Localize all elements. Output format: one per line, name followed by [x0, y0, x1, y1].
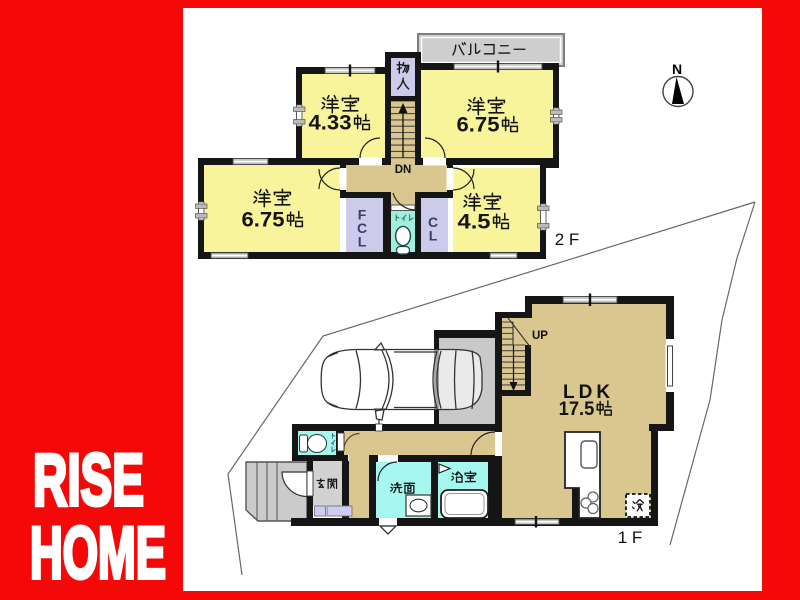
svg-text:UP: UP	[532, 330, 548, 342]
svg-text:6.75: 6.75	[457, 114, 500, 137]
svg-text:4.5: 4.5	[458, 211, 491, 234]
svg-text:RISE: RISE	[33, 440, 144, 521]
svg-text:L: L	[429, 227, 438, 243]
svg-text:6.75: 6.75	[242, 209, 285, 232]
svg-text:DN: DN	[395, 164, 412, 176]
svg-text:17.5: 17.5	[559, 398, 595, 420]
svg-text:2 F: 2 F	[555, 230, 580, 249]
svg-text:HOME: HOME	[30, 513, 166, 594]
svg-text:N: N	[672, 61, 682, 77]
svg-text:L: L	[358, 233, 367, 249]
svg-text:4.33: 4.33	[309, 112, 352, 135]
svg-text:1 F: 1 F	[618, 528, 643, 547]
